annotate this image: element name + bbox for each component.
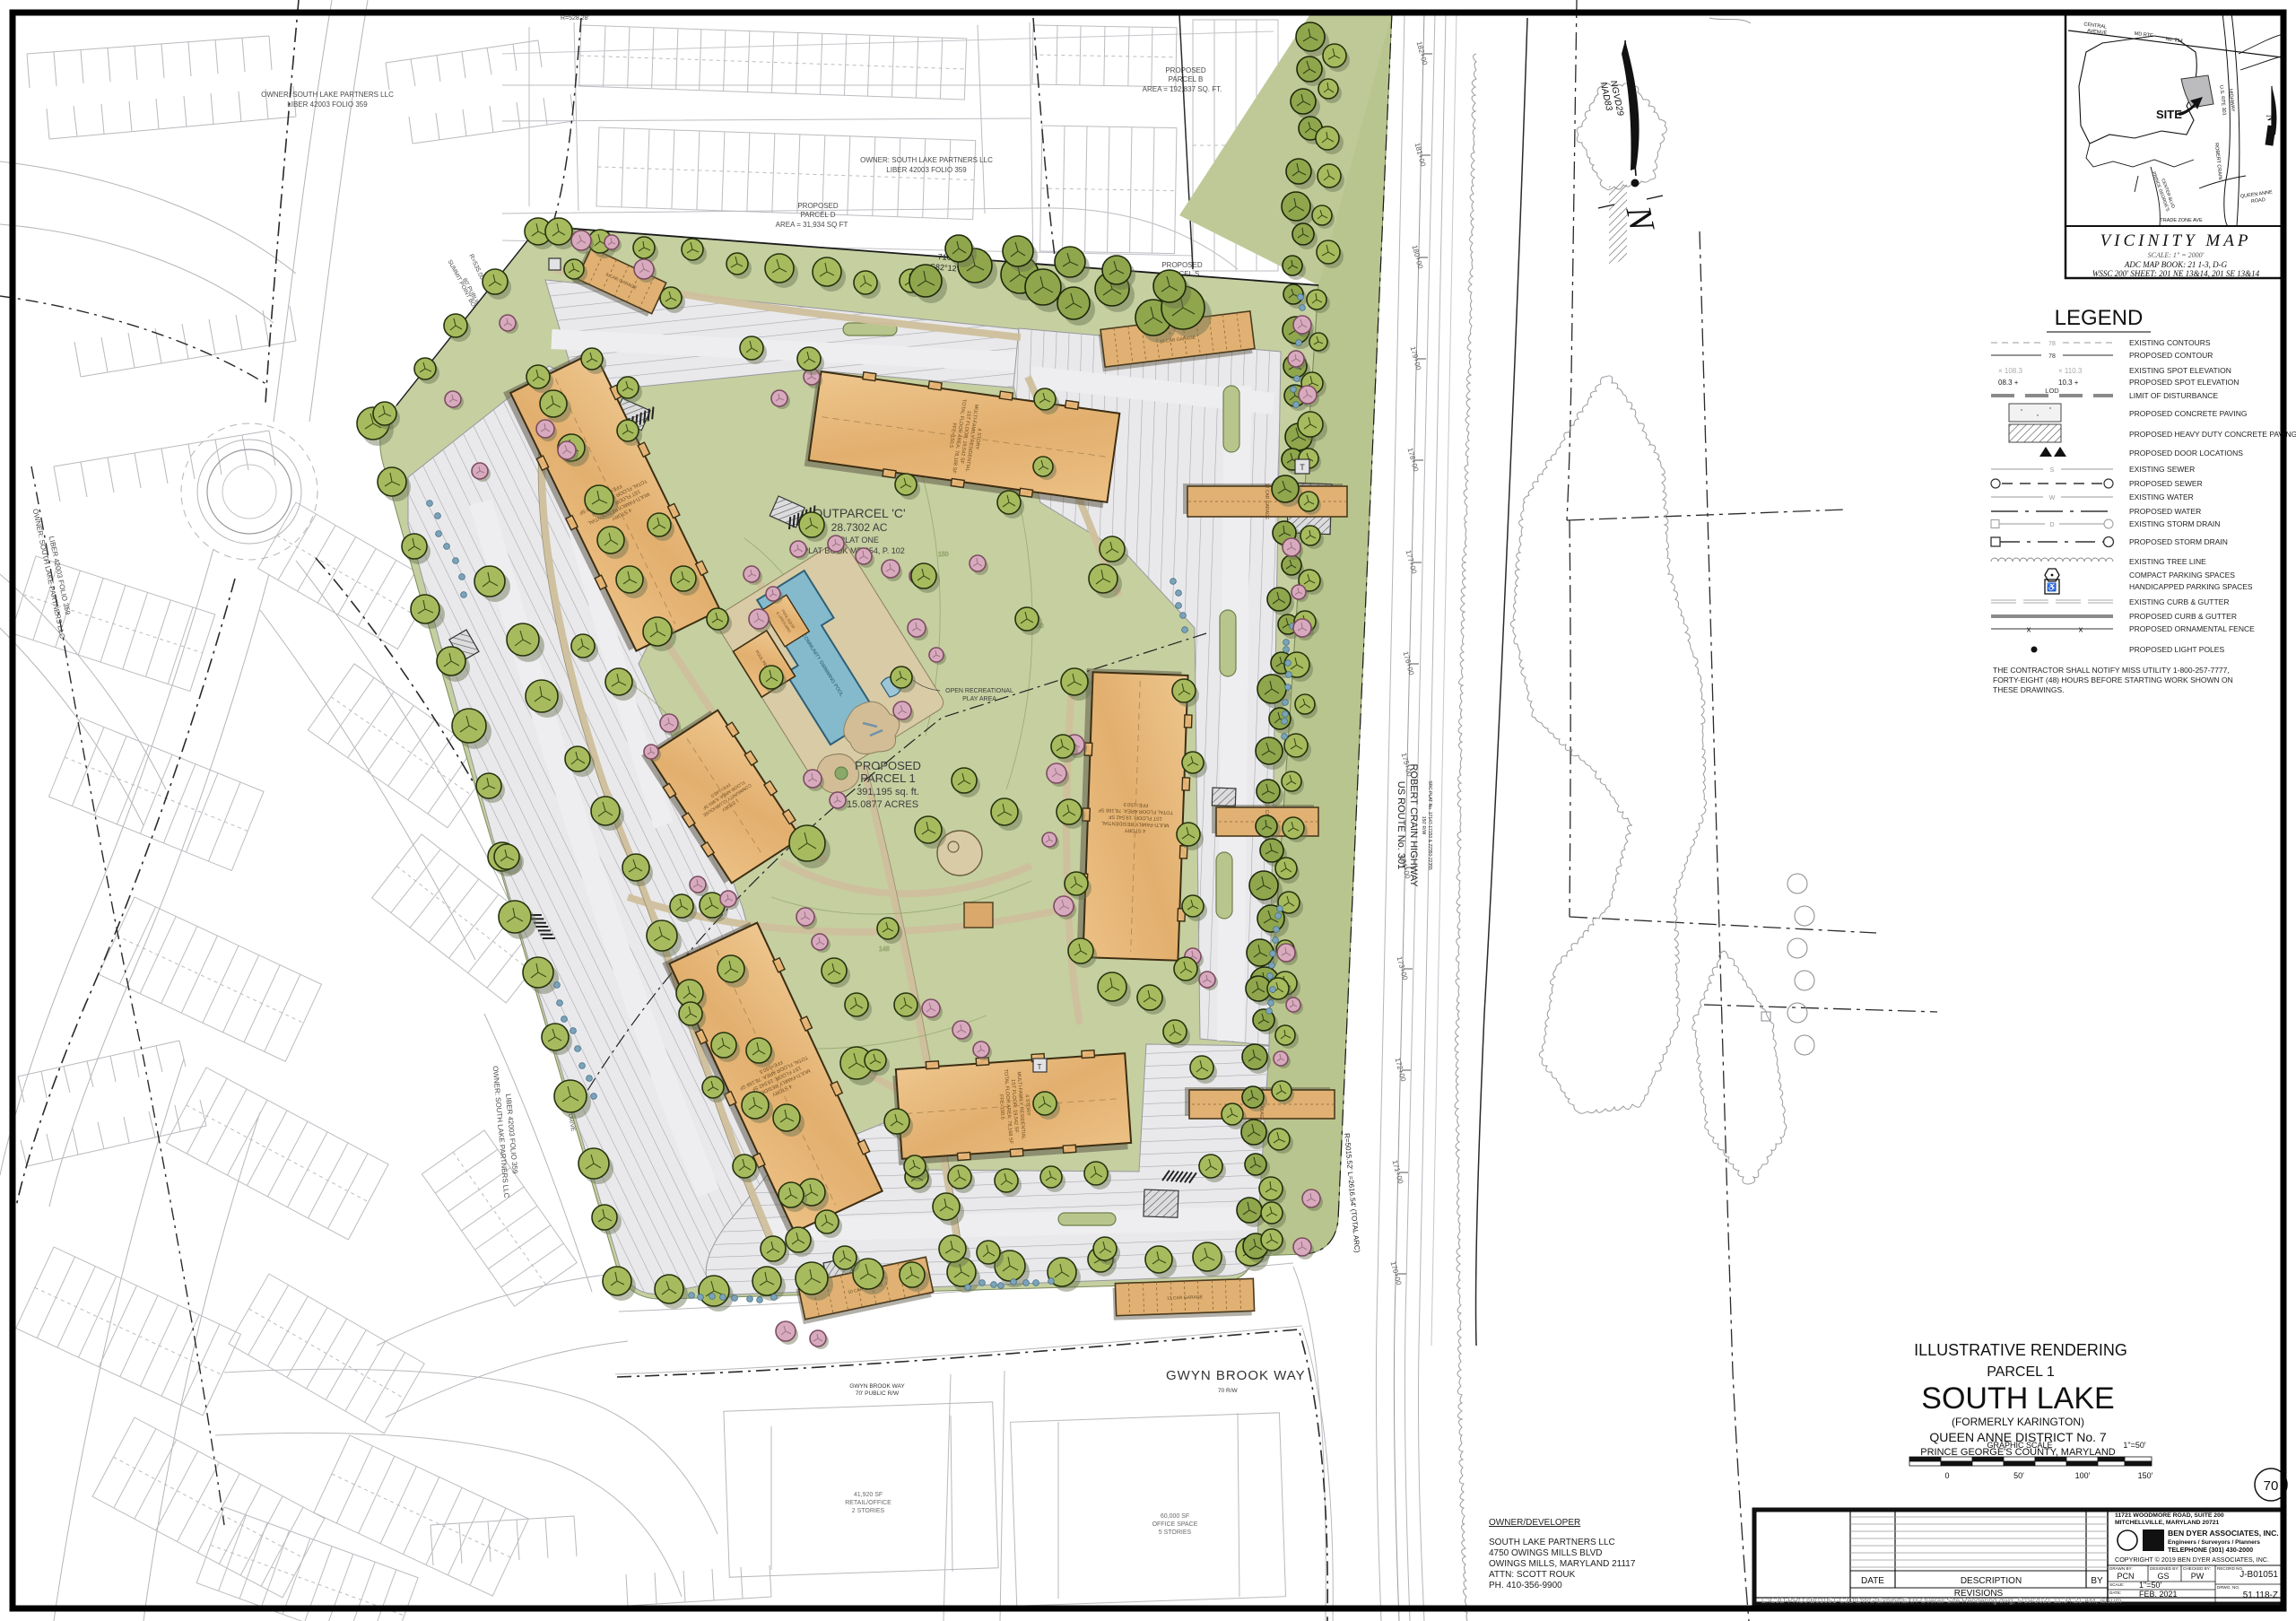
svg-text:GS: GS [2157,1572,2169,1581]
svg-text:DESCRIPTION: DESCRIPTION [1961,1576,2022,1586]
svg-text:HANDICAPPED PARKING SPACES: HANDICAPPED PARKING SPACES [2129,582,2253,591]
svg-text:2 STORIES: 2 STORIES [852,1508,885,1514]
svg-text:PARCEL B: PARCEL B [1169,75,1204,83]
svg-text:OWNER: SOUTH LAKE PARTNERS LLC: OWNER: SOUTH LAKE PARTNERS LLC [860,156,993,164]
svg-text:SITE: SITE [2156,108,2182,121]
svg-text:MITCHELLVILLE, MARYLAND 20721: MITCHELLVILLE, MARYLAND 20721 [2115,1520,2220,1526]
svg-text:J-B01051: J-B01051 [2239,1570,2278,1580]
svg-text:THE CONTRACTOR SHALL NOTIFY MI: THE CONTRACTOR SHALL NOTIFY MISS UTILITY… [1993,666,2230,675]
svg-text:OUTPARCEL 'C': OUTPARCEL 'C' [813,506,905,520]
svg-text:D: D [2049,522,2054,528]
svg-text:PROPOSED SEWER: PROPOSED SEWER [2129,479,2203,488]
svg-text:1"=50': 1"=50' [2123,1441,2145,1450]
svg-text:PH. 410-356-9900: PH. 410-356-9900 [1489,1581,1562,1590]
svg-text:GWYN BROOK WAY: GWYN BROOK WAY [849,1383,905,1390]
svg-text:AREA = 31,934 SQ FT: AREA = 31,934 SQ FT [776,221,848,229]
svg-text:ILLUSTRATIVE RENDERING: ILLUSTRATIVE RENDERING [1914,1341,2127,1359]
svg-text:GRAPHIC SCALE: GRAPHIC SCALE [1987,1441,2052,1450]
svg-text:PROPOSED ORNAMENTAL FENCE: PROPOSED ORNAMENTAL FENCE [2129,624,2255,633]
svg-text:OWNER: SOUTH LAKE PARTNERS LLC: OWNER: SOUTH LAKE PARTNERS LLC [261,91,394,99]
svg-text:PROPOSED STORM DRAIN: PROPOSED STORM DRAIN [2129,537,2228,546]
svg-text:LIMIT OF DISTURBANCE: LIMIT OF DISTURBANCE [2129,391,2218,400]
svg-text:11721 WOODMORE ROAD, SUITE 200: 11721 WOODMORE ROAD, SUITE 200 [2115,1512,2224,1519]
svg-text:TRADE ZONE AVE: TRADE ZONE AVE [2160,218,2203,223]
svg-text:W: W [2049,495,2056,501]
svg-text:PROPOSED: PROPOSED [855,759,921,772]
svg-text:ROBERT CRAIN HIGHWAY: ROBERT CRAIN HIGHWAY [1408,763,1419,887]
svg-text:BEN DYER ASSOCIATES, INC.: BEN DYER ASSOCIATES, INC. [2168,1529,2279,1538]
svg-text:EXISTING SPOT ELEVATION: EXISTING SPOT ELEVATION [2129,366,2231,375]
svg-text:PW: PW [2191,1572,2205,1581]
svg-text:12 CAR GARAGE: 12 CAR GARAGE [1264,484,1269,520]
svg-text:PROPOSED CURB & GUTTER: PROPOSED CURB & GUTTER [2129,612,2237,621]
svg-text:5 STORIES: 5 STORIES [1159,1529,1192,1536]
svg-text:EXISTING CONTOURS: EXISTING CONTOURS [2129,338,2211,347]
svg-text:× 108.3: × 108.3 [1998,367,2022,375]
svg-text:EXISTING TREE LINE: EXISTING TREE LINE [2129,557,2206,566]
svg-text:LOD: LOD [2045,387,2059,395]
svg-text:148: 148 [879,946,890,953]
svg-text:Engineers / Surveyors / Planne: Engineers / Surveyors / Planners [2168,1539,2260,1546]
svg-text:PROPOSED SPOT ELEVATION: PROPOSED SPOT ELEVATION [2129,378,2239,387]
svg-text:PROPOSED DOOR LOCATIONS: PROPOSED DOOR LOCATIONS [2129,449,2243,458]
svg-text:AREA = 192,837 SQ. FT.: AREA = 192,837 SQ. FT. [1143,85,1222,93]
svg-text:ATTN: SCOTT ROUK: ATTN: SCOTT ROUK [1489,1570,1576,1580]
svg-text:OFFICE SPACE: OFFICE SPACE [1152,1521,1198,1528]
svg-text:150': 150' [2138,1471,2153,1480]
svg-text:OWINGS MILLS, MARYLAND 21117: OWINGS MILLS, MARYLAND 21117 [1489,1559,1636,1569]
svg-text:1"=50': 1"=50' [2139,1581,2161,1590]
svg-text:DATE:: DATE: [2109,1590,2121,1595]
svg-text:60,000 SF: 60,000 SF [1161,1513,1189,1520]
svg-text:EXISTING CURB & GUTTER: EXISTING CURB & GUTTER [2129,597,2229,606]
svg-text:L:\C3D-PROJ\B01051-C3D\DWG\Exh: L:\C3D-PROJ\B01051-C3D\DWG\Exhibit\EXH-O… [1761,1596,2121,1605]
svg-text:OWNER/DEVELOPER: OWNER/DEVELOPER [1489,1518,1580,1528]
svg-text:PROPOSED CONTOUR: PROPOSED CONTOUR [2129,351,2213,360]
svg-text:COPYRIGHT © 2019 BEN DYER ASSO: COPYRIGHT © 2019 BEN DYER ASSOCIATES, IN… [2115,1556,2269,1564]
svg-text:PROPOSED: PROPOSED [1165,66,1206,74]
svg-text:THESE DRAWINGS.: THESE DRAWINGS. [1993,685,2065,694]
svg-text:28.7302 AC: 28.7302 AC [831,521,888,534]
svg-text:× 110.3: × 110.3 [2058,367,2083,375]
svg-text:50': 50' [2013,1471,2024,1480]
svg-text:GWYN BROOK WAY: GWYN BROOK WAY [1166,1368,1306,1383]
svg-text:DRAWN BY:: DRAWN BY: [2109,1566,2133,1571]
svg-text:EXISTING STORM DRAIN: EXISTING STORM DRAIN [2129,519,2220,528]
svg-text:PROPOSED LIGHT POLES: PROPOSED LIGHT POLES [2129,645,2224,654]
svg-text:FORTY-EIGHT (48) HOURS BEFORE: FORTY-EIGHT (48) HOURS BEFORE STARTING W… [1993,675,2233,684]
svg-text:78: 78 [2048,353,2056,360]
svg-text:4 STORY: 4 STORY [1124,827,1145,833]
svg-text:(FORMERLY KARINGTON): (FORMERLY KARINGTON) [1952,1416,2084,1428]
svg-text:LEGEND: LEGEND [2055,306,2144,330]
svg-text:41,920 SF: 41,920 SF [854,1492,883,1498]
svg-text:PLAY AREA: PLAY AREA [962,696,996,702]
svg-text:PARCEL 1: PARCEL 1 [1987,1364,2055,1380]
svg-text:4750 OWINGS MILLS BLVD: 4750 OWINGS MILLS BLVD [1489,1548,1603,1558]
svg-text:10.3 +: 10.3 + [2058,379,2079,387]
svg-text:78: 78 [2048,341,2056,347]
svg-text:LIBER 42003 FOLIO 359: LIBER 42003 FOLIO 359 [287,100,368,109]
svg-text:SCALE: 1" = 2000': SCALE: 1" = 2000' [2148,251,2205,259]
svg-text:PROPOSED WATER: PROPOSED WATER [2129,507,2201,516]
svg-text:51.118-Z: 51.118-Z [2243,1590,2278,1600]
svg-text:VICINITY MAP: VICINITY MAP [2100,231,2252,250]
svg-text:EXISTING SEWER: EXISTING SEWER [2129,465,2195,474]
svg-text:70: 70 [2264,1478,2279,1494]
svg-text:♿: ♿ [2047,582,2057,592]
svg-text:PARCEL D: PARCEL D [800,211,835,219]
svg-text:SCALE:: SCALE: [2109,1582,2124,1587]
svg-text:BY: BY [2091,1576,2103,1586]
svg-text:FFE=150.5: FFE=150.5 [1123,801,1148,807]
svg-text:DESIGNED BY:: DESIGNED BY: [2150,1566,2179,1571]
svg-text:150' R/W: 150' R/W [1421,816,1426,835]
svg-text:15.0877 ACRES: 15.0877 ACRES [847,799,918,810]
svg-text:CHECKED BY:: CHECKED BY: [2183,1566,2211,1571]
svg-text:LIBER 42003 FOLIO 359: LIBER 42003 FOLIO 359 [886,166,967,174]
svg-text:SOUTH LAKE: SOUTH LAKE [1921,1381,2114,1416]
svg-text:T: T [1300,463,1305,472]
svg-text:FEB. 2021: FEB. 2021 [2139,1590,2178,1599]
svg-text:OPEN RECREATIONAL: OPEN RECREATIONAL [945,688,1013,694]
svg-text:TELEPHONE (301) 430-2000: TELEPHONE (301) 430-2000 [2168,1546,2253,1554]
svg-text:US ROUTE No. 301: US ROUTE No. 301 [1396,781,1406,869]
svg-text:150: 150 [938,552,949,558]
svg-text:PROPOSED HEAVY DUTY CONCRETE P: PROPOSED HEAVY DUTY CONCRETE PAVING [2129,430,2296,439]
svg-text:SOUTH LAKE PARTNERS LLC: SOUTH LAKE PARTNERS LLC [1489,1538,1615,1547]
svg-text:PARCEL 1: PARCEL 1 [860,771,915,785]
svg-text:DATE: DATE [1861,1576,1884,1586]
svg-text:S: S [2050,467,2055,474]
svg-text:08.3 +: 08.3 + [1998,379,2019,387]
svg-text:0: 0 [1944,1471,1949,1480]
svg-text:70 R/W: 70 R/W [1218,1388,1239,1394]
svg-text:R=528.28': R=528.28' [561,15,589,22]
svg-text:T: T [1037,1062,1041,1071]
svg-text:PLAT BOOK ME 254, P. 102: PLAT BOOK ME 254, P. 102 [803,546,905,555]
svg-text:EXISTING WATER: EXISTING WATER [2129,492,2194,501]
svg-text:70' PUBLIC R/W: 70' PUBLIC R/W [856,1390,900,1397]
svg-text:PROPOSED CONCRETE PAVING: PROPOSED CONCRETE PAVING [2129,409,2247,418]
svg-text:x: x [2027,625,2031,634]
svg-text:WSSC 200' SHEET: 201 NE 13&14,: WSSC 200' SHEET: 201 NE 13&14, 201 SE 13… [2092,269,2260,278]
svg-text:PCN: PCN [2117,1572,2134,1581]
svg-text:ADC MAP BOOK: 21 1-3, D-G: ADC MAP BOOK: 21 1-3, D-G [2124,260,2228,269]
svg-text:x: x [2079,625,2083,634]
svg-text:100': 100' [2075,1471,2091,1480]
svg-text:391,195 sq. ft.: 391,195 sq. ft. [857,787,919,797]
svg-text:PROPOSED: PROPOSED [1161,261,1203,269]
svg-text:DRWG. NO.: DRWG. NO. [2217,1585,2239,1590]
svg-text:PROPOSED: PROPOSED [797,202,839,210]
svg-text:RETAIL/OFFICE: RETAIL/OFFICE [845,1500,891,1506]
svg-text:SRC PLAT No. 17147-17150 & 223: SRC PLAT No. 17147-17150 & 22350-22355 [1427,780,1432,870]
svg-text:COMPACT PARKING SPACES: COMPACT PARKING SPACES [2129,571,2235,580]
